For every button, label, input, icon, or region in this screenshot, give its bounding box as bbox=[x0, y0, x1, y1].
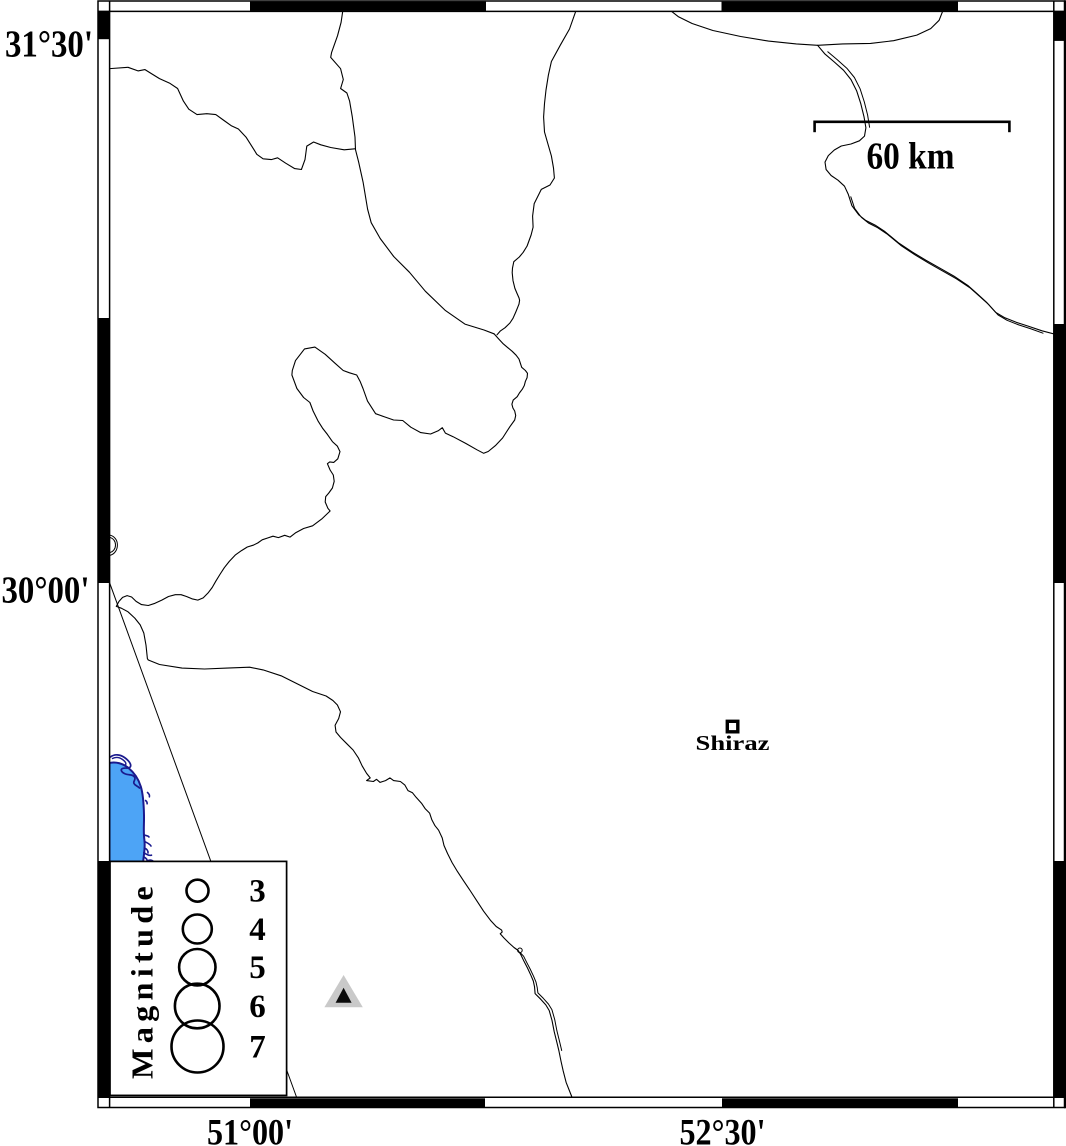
svg-text:51°00': 51°00' bbox=[207, 1113, 293, 1146]
svg-text:30°00': 30°00' bbox=[2, 570, 90, 612]
svg-text:5: 5 bbox=[249, 950, 266, 986]
svg-text:31°30': 31°30' bbox=[5, 23, 93, 65]
svg-text:Magnitude: Magnitude bbox=[125, 881, 160, 1079]
svg-text:6: 6 bbox=[249, 989, 266, 1025]
svg-text:7: 7 bbox=[249, 1029, 266, 1065]
svg-text:3: 3 bbox=[249, 874, 266, 910]
svg-text:60 km: 60 km bbox=[867, 136, 955, 178]
svg-text:52°30': 52°30' bbox=[680, 1113, 766, 1146]
svg-text:4: 4 bbox=[249, 912, 266, 948]
svg-text:Shiraz: Shiraz bbox=[696, 731, 771, 755]
